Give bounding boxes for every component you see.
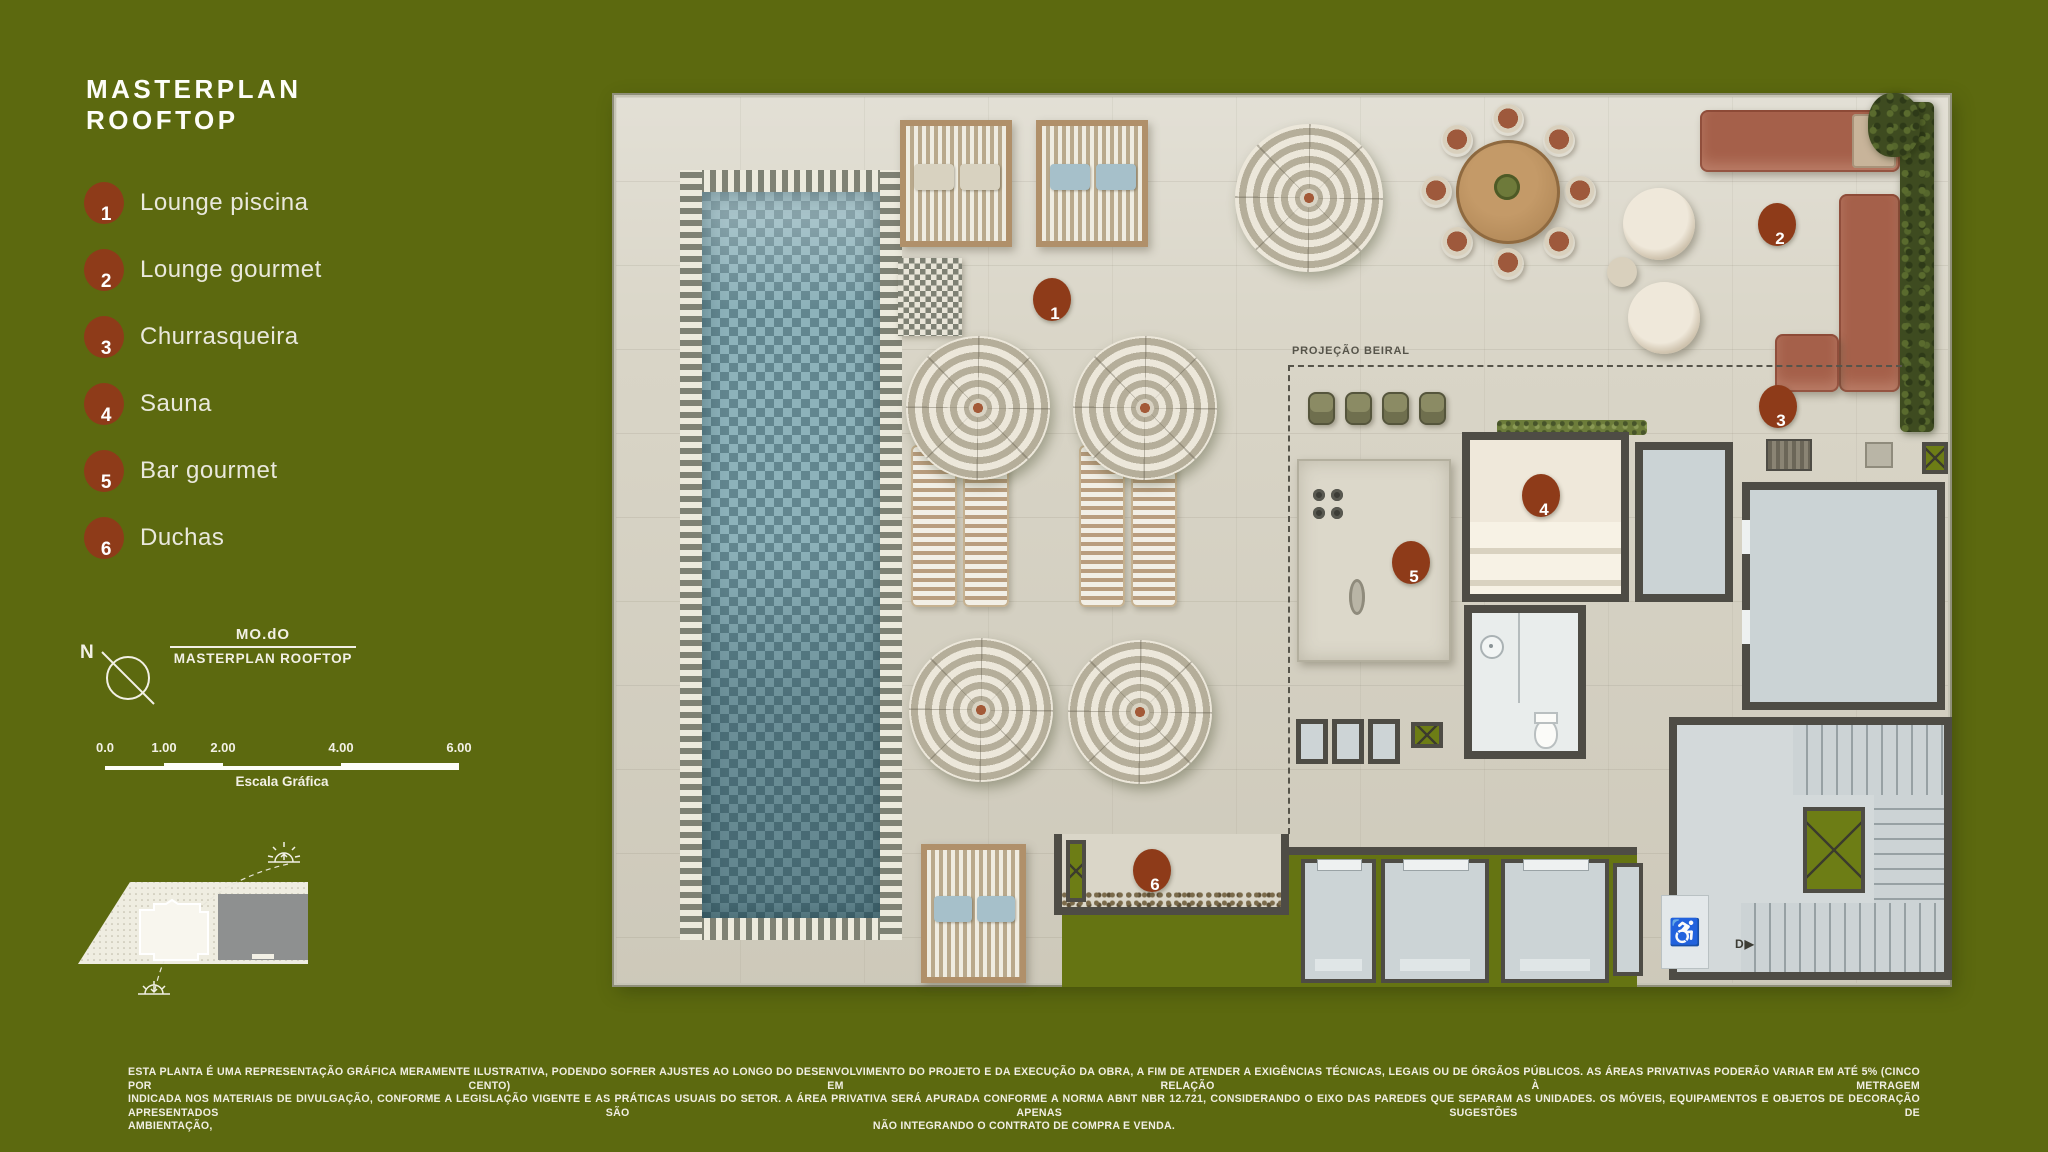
dining-chair xyxy=(1564,176,1596,208)
pool-border xyxy=(680,170,702,940)
plan-marker-5: 5 xyxy=(1392,541,1430,584)
pool-border xyxy=(680,170,902,192)
legend-number-badge: 5 xyxy=(84,450,124,492)
legend-label: Lounge piscina xyxy=(140,189,308,217)
plan-name: MASTERPLAN ROOFTOP xyxy=(170,651,356,666)
double-daybed xyxy=(900,120,1012,247)
beiral-dashed-line xyxy=(1288,365,1902,367)
stair-flight xyxy=(1793,725,1944,795)
sun-icon-nascente xyxy=(268,842,300,862)
plan-marker-6: 6 xyxy=(1133,849,1171,892)
legend-item-bar-gourmet: 5Bar gourmet xyxy=(84,449,278,493)
umbrella xyxy=(906,336,1050,480)
disclaimer-line: AMBIENTAÇÃO, NÃO INTEGRANDO O CONTRATO D… xyxy=(128,1120,1920,1134)
hall-room xyxy=(1635,442,1733,602)
ac-unit xyxy=(1766,439,1812,471)
dining-chair xyxy=(1543,227,1575,259)
umbrella xyxy=(1068,640,1212,784)
open-void xyxy=(1062,915,1289,987)
legend-item-duchas: 6Duchas xyxy=(84,516,224,560)
toilet xyxy=(1534,719,1558,749)
legend-number-badge: 3 xyxy=(84,316,124,358)
scale-bar: 0.01.002.004.006.00 Escala Gráfica xyxy=(105,740,459,792)
bar-stool xyxy=(1308,392,1335,425)
shower-drain-strip xyxy=(1066,840,1086,902)
stair-void xyxy=(1803,807,1865,893)
plan-marker-2: 2 xyxy=(1758,203,1796,246)
side-table xyxy=(1607,257,1637,287)
stair-letter: D xyxy=(1735,937,1745,951)
dining-chair xyxy=(1420,176,1452,208)
disclaimer-line3-left: AMBIENTAÇÃO, xyxy=(128,1120,213,1132)
site-building xyxy=(140,900,208,960)
stair-direction-label: D▶ xyxy=(1735,937,1755,951)
scale-tick: 0.0 xyxy=(96,740,114,755)
legend-label: Bar gourmet xyxy=(140,457,278,485)
dining-chair xyxy=(1441,125,1473,157)
sofa-section xyxy=(1775,334,1839,392)
hall-room-large xyxy=(1742,482,1945,710)
duchas-area xyxy=(1054,834,1289,915)
elevator-shaft xyxy=(1301,859,1376,983)
pool-border xyxy=(680,918,902,940)
bar-stool xyxy=(1419,392,1446,425)
tree-canopy xyxy=(1868,93,1920,157)
legend-item-churrasqueira: 3Churrasqueira xyxy=(84,315,299,359)
legend-label: Churrasqueira xyxy=(140,323,299,351)
elevator-shaft xyxy=(1501,859,1609,983)
disclaimer-line3-center: NÃO INTEGRANDO O CONTRATO DE COMPRA E VE… xyxy=(873,1120,1175,1134)
bar-stool xyxy=(1382,392,1409,425)
shower-head xyxy=(1480,635,1504,659)
scale-segment xyxy=(164,763,223,770)
dining-chair xyxy=(1492,104,1524,136)
dining-chair xyxy=(1543,125,1575,157)
sofa-section xyxy=(1839,194,1900,392)
dining-table xyxy=(1456,140,1560,244)
pool-water xyxy=(702,192,880,918)
legend-item-sauna: 4Sauna xyxy=(84,382,212,426)
scale-caption: Escala Gráfica xyxy=(105,774,459,789)
scale-segment xyxy=(105,766,164,770)
glass-partition xyxy=(1518,613,1520,703)
disclaimer: ESTA PLANTA É UMA REPRESENTAÇÃO GRÁFICA … xyxy=(128,1066,1920,1134)
equipment-box xyxy=(1865,442,1893,468)
legend-number-badge: 6 xyxy=(84,517,124,559)
plan-marker-1: 1 xyxy=(1033,278,1071,321)
beiral-dashed-line xyxy=(1288,365,1290,834)
scale-tick: 1.00 xyxy=(151,740,176,755)
scale-segment xyxy=(223,766,341,770)
sun-icon-poente xyxy=(138,981,170,994)
scale-tick: 6.00 xyxy=(446,740,471,755)
scale-tick: 4.00 xyxy=(328,740,353,755)
scale-tick: 2.00 xyxy=(210,740,235,755)
rooftop-plan: PROJEÇÃO BEIRAL xyxy=(614,95,1950,985)
site-tower-entry xyxy=(252,954,274,959)
umbrella xyxy=(1073,336,1217,480)
double-daybed xyxy=(1036,120,1148,247)
floor-drain xyxy=(1922,442,1948,474)
legend-item-lounge-piscina: 1Lounge piscina xyxy=(84,181,308,225)
floor-drain xyxy=(1411,722,1443,748)
pool-platform xyxy=(898,258,962,336)
bar-stool xyxy=(1345,392,1372,425)
site-diagram xyxy=(56,832,336,1022)
legend-label: Duchas xyxy=(140,524,224,552)
stair-room: ♿ D▶ xyxy=(1669,717,1952,980)
stair-flight xyxy=(1741,903,1944,972)
umbrella xyxy=(1235,124,1383,272)
north-label: N xyxy=(80,642,94,663)
round-lounge-chair xyxy=(1628,282,1700,354)
double-daybed xyxy=(921,844,1026,983)
title-block-divider xyxy=(170,646,356,648)
dining-chair xyxy=(1492,248,1524,280)
service-closet xyxy=(1368,719,1400,764)
dining-set xyxy=(1418,102,1598,282)
bar-sink xyxy=(1349,579,1365,615)
stair-flight xyxy=(1874,795,1944,903)
plan-marker-4: 4 xyxy=(1522,474,1560,517)
bathroom xyxy=(1464,605,1586,759)
beiral-label: PROJEÇÃO BEIRAL xyxy=(1292,345,1410,357)
brand-logo: MO.dO xyxy=(170,626,356,643)
legend-label: Lounge gourmet xyxy=(140,256,322,284)
compass-needle xyxy=(102,652,154,704)
legend-number-badge: 2 xyxy=(84,249,124,291)
umbrella xyxy=(909,638,1053,782)
elevator-bank xyxy=(1289,847,1637,987)
plan-marker-3: 3 xyxy=(1759,385,1797,428)
legend-number-badge: 1 xyxy=(84,182,124,224)
sauna-benches xyxy=(1470,522,1621,594)
legend-item-lounge-gourmet: 2Lounge gourmet xyxy=(84,248,322,292)
site-tower xyxy=(218,894,308,960)
legend-label: Sauna xyxy=(140,390,212,418)
service-closet xyxy=(1296,719,1328,764)
accessible-area: ♿ xyxy=(1661,895,1709,969)
dining-chair xyxy=(1441,227,1473,259)
legend-number-badge: 4 xyxy=(84,383,124,425)
elevator-shaft xyxy=(1381,859,1489,983)
round-lounge-chair xyxy=(1623,188,1695,260)
title-block: MO.dO MASTERPLAN ROOFTOP xyxy=(170,626,356,666)
disclaimer-line: INDICADA NOS MATERIAIS DE DIVULGAÇÃO, CO… xyxy=(128,1093,1920,1120)
scale-segment xyxy=(341,763,459,770)
disclaimer-line: ESTA PLANTA É UMA REPRESENTAÇÃO GRÁFICA … xyxy=(128,1066,1920,1093)
elevator-shaft xyxy=(1613,863,1643,976)
service-closet xyxy=(1332,719,1364,764)
legend: 1Lounge piscina2Lounge gourmet3Churrasqu… xyxy=(0,0,470,600)
